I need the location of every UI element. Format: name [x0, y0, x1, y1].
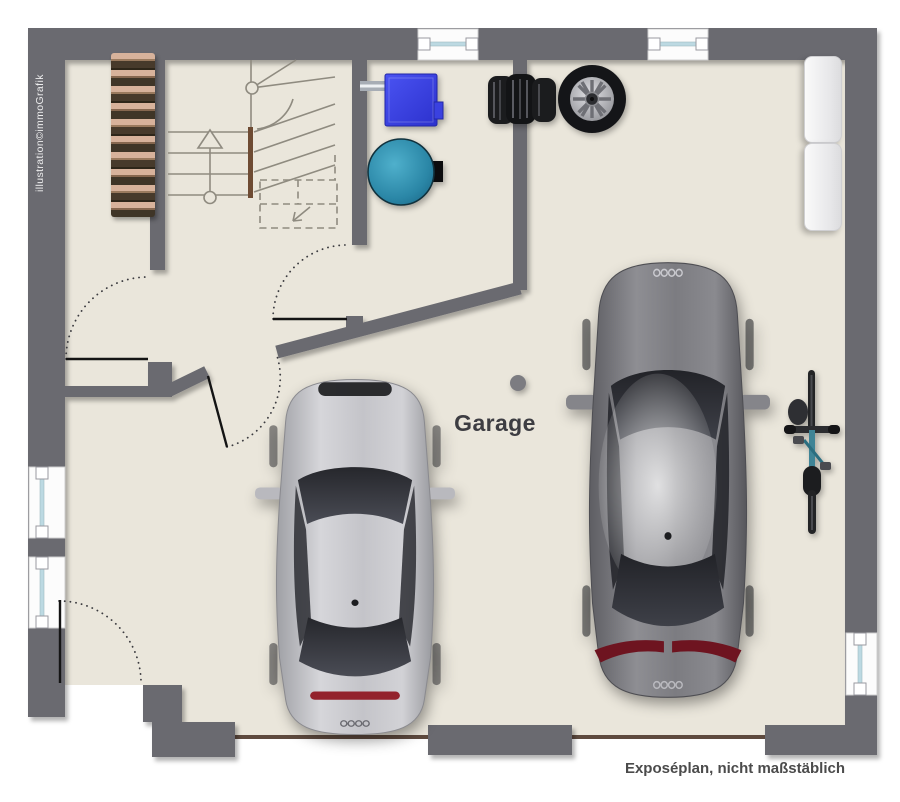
disclaimer-text: Exposéplan, nicht maßstäblich [625, 760, 845, 777]
stair-stringer [248, 127, 253, 198]
support-column [510, 375, 526, 391]
taillight-strip [310, 692, 400, 700]
left-mirror [255, 487, 284, 499]
floorplan-page: Garage Exposéplan, nicht maßstäblich ill… [0, 0, 900, 802]
gray-car [566, 256, 770, 704]
sunroof [318, 382, 391, 396]
window-top-left [418, 29, 478, 60]
watermark-text: illustration©immoGrafik [34, 74, 46, 192]
heating-boiler [385, 74, 443, 126]
right-mirror [426, 487, 455, 499]
antenna [351, 600, 358, 606]
window-left-upper [29, 467, 65, 538]
spare-wheel [558, 65, 626, 133]
window-right [846, 633, 877, 695]
heating-pipe [360, 81, 386, 91]
window-top-right [648, 29, 708, 60]
left-mirror [566, 395, 597, 410]
room-label: Garage [425, 410, 565, 437]
bicycle [781, 366, 843, 538]
outer-wall-bottom-right [765, 725, 877, 755]
outer-wall-bottom-left-b [152, 722, 235, 757]
antenna [664, 532, 671, 540]
pedal-left [793, 436, 804, 444]
wall-shelf-upper [804, 56, 842, 143]
tire-stack [488, 74, 556, 124]
door-jamb-stub [346, 316, 363, 333]
pedal-right [820, 462, 831, 470]
interior-wall-stub [57, 386, 157, 397]
firewood-rack [111, 53, 155, 217]
handlebar-bag [788, 399, 808, 425]
right-mirror [739, 395, 770, 410]
outer-wall-bottom-left-a [143, 685, 182, 722]
wall-shelf-lower [804, 143, 842, 231]
